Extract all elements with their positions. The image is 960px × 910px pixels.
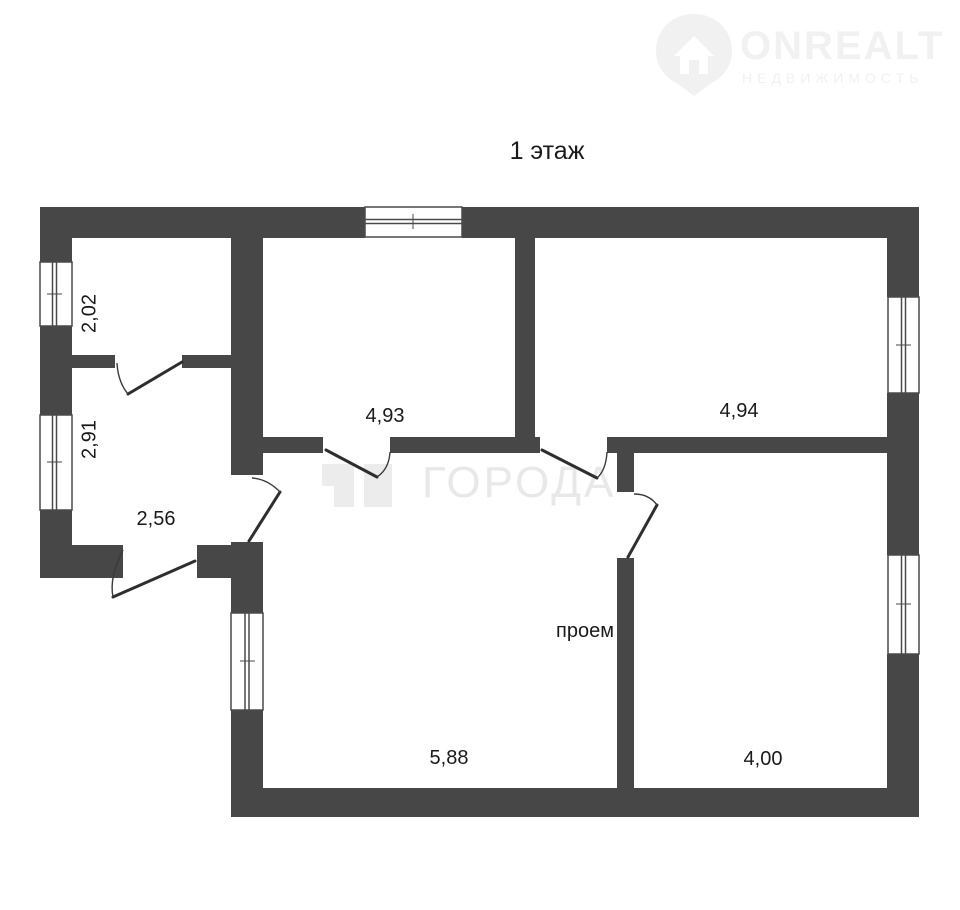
door-arc	[117, 363, 128, 394]
door-swing	[112, 550, 195, 597]
door-leaf	[542, 450, 597, 478]
window-symbol	[40, 262, 72, 326]
dim-label-room-top-left: 2,02	[79, 274, 102, 354]
window-symbol	[888, 297, 919, 393]
window-symbol	[365, 207, 462, 237]
window-symbol	[231, 613, 263, 710]
wall-segment	[231, 437, 323, 453]
opening-arc	[634, 494, 657, 505]
wall-segment	[40, 207, 72, 262]
door-leaf	[128, 362, 182, 394]
dim-label-room-bottom-right: 4,00	[723, 748, 803, 771]
wall-segment	[231, 542, 263, 613]
dim-label-hall-lower: 2,56	[116, 508, 196, 531]
wall-segment	[390, 437, 540, 453]
wall-segment	[40, 326, 72, 415]
wall-segment	[515, 238, 535, 453]
floorplan-screenshot: { "page": { "title": "1 этаж" }, "brand"…	[0, 0, 960, 910]
door-leaf	[113, 561, 195, 597]
wall-segment	[72, 355, 115, 368]
wall-segment	[40, 545, 123, 578]
dim-label-room-bottom-mid: 5,88	[409, 747, 489, 770]
door-leaf	[249, 492, 280, 541]
wall-segment	[231, 710, 263, 788]
wall-segment	[231, 207, 263, 475]
dim-label-room-mid-top: 4,93	[345, 405, 425, 428]
page-title: 1 этаж	[447, 137, 647, 166]
wall-segment	[887, 393, 919, 555]
wall-segment	[887, 207, 919, 297]
wall-segment	[617, 558, 634, 788]
wall-segment	[231, 788, 919, 817]
wall-segment	[182, 355, 231, 368]
wall-segment	[197, 545, 231, 578]
opening-label: проем	[545, 620, 625, 643]
wall-segment	[462, 207, 918, 238]
window-symbol	[888, 555, 919, 654]
door-swing	[542, 450, 607, 478]
window-symbol	[40, 415, 72, 510]
wall-segment	[40, 207, 365, 238]
dim-label-hall-upper: 2,91	[79, 400, 102, 480]
opening-swing	[628, 494, 657, 557]
windows	[40, 207, 919, 710]
door-swing	[117, 362, 182, 394]
door-swing	[326, 450, 390, 477]
door-arc	[252, 478, 281, 493]
door-swing	[249, 478, 281, 541]
door-arc	[597, 452, 607, 478]
opening-leaf	[628, 505, 657, 557]
dim-label-room-top-right: 4,94	[699, 400, 779, 423]
wall-segment	[607, 437, 888, 453]
doors	[112, 362, 657, 597]
door-arc	[377, 452, 390, 477]
wall-segment	[617, 453, 634, 492]
door-leaf	[326, 450, 377, 477]
